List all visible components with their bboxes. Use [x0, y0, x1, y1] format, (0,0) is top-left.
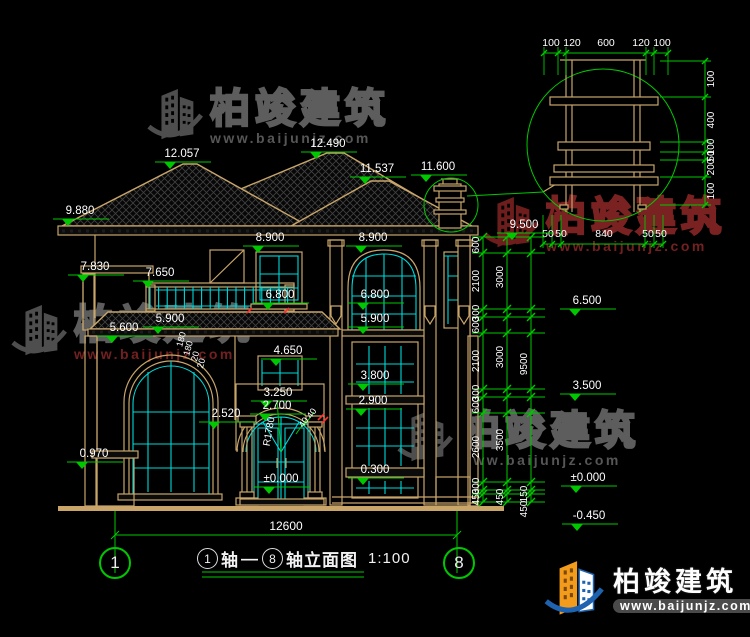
detail-dim-label: 120 — [632, 37, 650, 49]
caption-axis-to: 8 — [262, 548, 283, 569]
chain-dim-label: 150 — [519, 485, 530, 502]
detail-dim-label: 200 — [706, 158, 717, 175]
detail-dim-label: 50 — [555, 228, 567, 240]
chain-dim-label: 450 — [471, 488, 482, 505]
level-label: -0.450 — [573, 510, 606, 522]
brand-logo-icon — [543, 556, 605, 626]
level-marker: -0.450 — [562, 510, 618, 531]
level-label: 2.520 — [212, 408, 241, 420]
chain-dim-label: 600 — [471, 396, 482, 413]
level-label: 7.830 — [81, 261, 110, 273]
detail-dim-label: 100 — [706, 70, 717, 87]
detail-leader-line — [467, 192, 543, 196]
brand-logo-text: 柏竣建筑 — [613, 569, 750, 596]
detail-dim-label: 120 — [563, 37, 581, 49]
chain-dim-label: 9500 — [519, 352, 530, 375]
level-label: 7.650 — [146, 267, 175, 279]
detail-dim-label: 100 — [706, 182, 717, 199]
pilasters — [328, 240, 472, 505]
elevation-drawing: .t{stroke:#c9a56a;fill:none;stroke-width… — [0, 0, 750, 637]
balcony-door — [210, 250, 244, 283]
chain-dim-label: 600 — [471, 236, 482, 253]
axis-bubble-8: 8 — [443, 547, 475, 579]
level-label: 9.880 — [66, 205, 95, 217]
detail-dim-label: 50 — [542, 228, 554, 240]
cad-elevation-screenshot: 柏竣建筑 www.baijunjz.com 柏竣建筑 www.baijunjz.… — [0, 0, 750, 637]
brand-logo: 柏竣建筑 www.baijunjz.com — [543, 556, 750, 626]
level-marker: 6.500 — [560, 295, 616, 316]
level-label: 0.970 — [80, 448, 109, 460]
main-roof — [58, 153, 478, 235]
chain-dim-label: 600 — [471, 316, 482, 333]
chain-dim-label: 2600 — [471, 435, 482, 458]
detail-dim-label: 50 — [642, 228, 654, 240]
caption-scale: 1:100 — [368, 550, 411, 567]
level-label: 9.500 — [510, 219, 539, 231]
level-label: 8.900 — [256, 232, 285, 244]
detail-dim-label: 600 — [597, 37, 615, 49]
detail-dim-label: 100 — [542, 37, 560, 49]
level-label: 5.900 — [156, 313, 185, 325]
level-label: ±0.000 — [570, 472, 605, 484]
small-dim-text: 20 — [195, 357, 207, 369]
level-label: 2.900 — [359, 395, 388, 407]
level-label: 5.600 — [110, 322, 139, 334]
level-label: 0.300 — [361, 464, 390, 476]
level-marker: ±0.000 — [561, 472, 617, 493]
level-marker: ±0.000 — [254, 473, 310, 494]
ground-line — [58, 506, 504, 511]
detail-dim-label: 840 — [595, 228, 613, 240]
detail-dim-label: 100 — [653, 37, 671, 49]
level-label: 3.250 — [264, 387, 293, 399]
chimney-detail: 1001206001201001004001005020010050508405… — [527, 37, 717, 248]
axis-bubble-1: 1 — [99, 547, 131, 579]
detail-dim-label: 400 — [706, 111, 717, 128]
dimension-chains: 6002100300600210030060026003004503000300… — [471, 233, 545, 517]
chain-dim-label: 2100 — [471, 269, 482, 292]
second-storey — [81, 235, 470, 506]
chain-dim-label: 450 — [495, 488, 506, 505]
chain-dim-label: 3000 — [495, 265, 506, 288]
level-label: 6.800 — [361, 289, 390, 301]
level-label: 11.600 — [421, 161, 455, 173]
chain-dim-label: 3000 — [495, 345, 506, 368]
level-label: 5.900 — [361, 313, 390, 325]
brand-logo-url: www.baijunjz.com — [613, 599, 750, 614]
level-marker: 3.800 — [348, 370, 404, 391]
chain-dim-label: 2100 — [471, 349, 482, 372]
level-label: 3.500 — [573, 380, 602, 392]
level-label: 11.537 — [360, 163, 394, 175]
level-label: ±0.000 — [263, 473, 298, 485]
level-label: 12.057 — [164, 148, 199, 160]
quoin-left — [85, 336, 97, 506]
level-label: 3.800 — [361, 370, 390, 382]
caption-axis-from: 1 — [197, 548, 218, 569]
level-label: 8.900 — [359, 232, 388, 244]
detail-dim-label: 50 — [655, 228, 667, 240]
level-marker: 6.800 — [348, 289, 404, 310]
chain-dim-label: 450 — [519, 500, 530, 517]
level-label: 6.800 — [266, 289, 295, 301]
level-marker: 3.500 — [560, 380, 616, 401]
overall-dim-text: 12600 — [269, 519, 303, 533]
drawing-caption: 1 轴 — 8 轴立面图 1:100 — [196, 546, 411, 571]
chain-dim-label: 3500 — [495, 428, 506, 451]
chimney — [434, 179, 466, 228]
level-label: 12.490 — [310, 138, 345, 150]
level-label: 2.700 — [263, 400, 292, 412]
level-label: 6.500 — [573, 295, 602, 307]
level-label: 4.650 — [274, 345, 303, 357]
